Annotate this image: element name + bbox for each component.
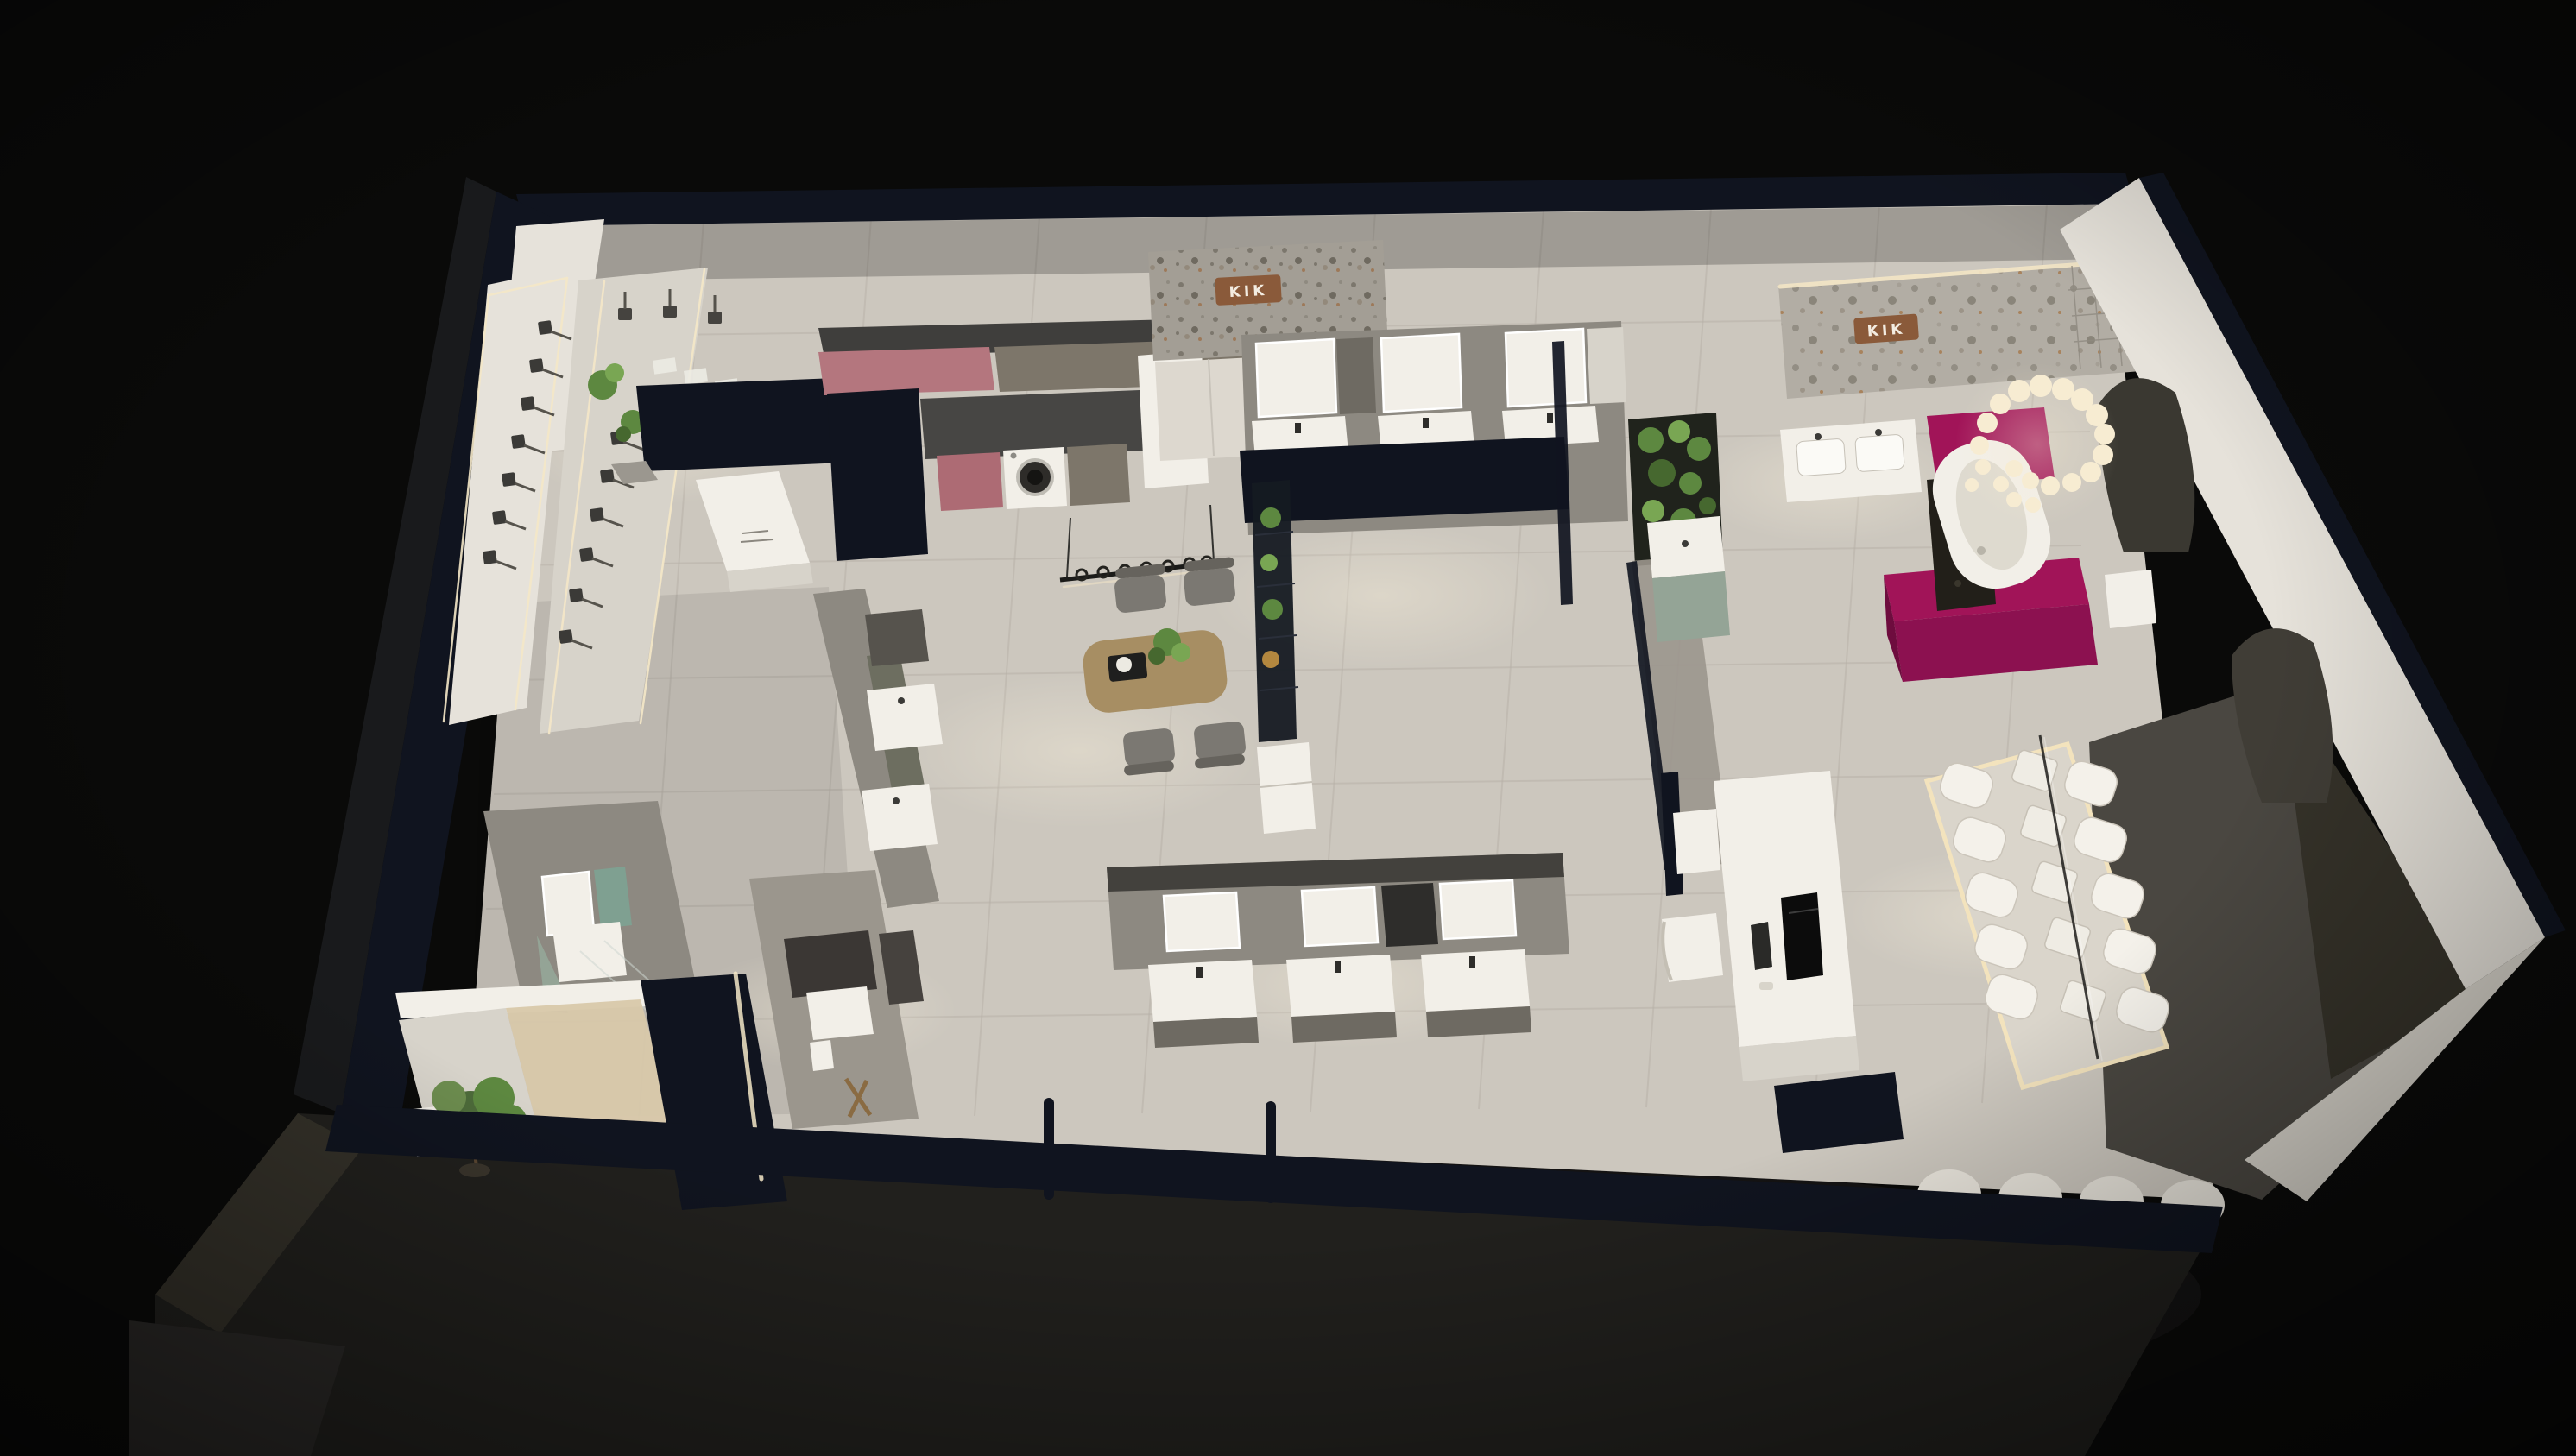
chandelier-bulb bbox=[2086, 404, 2108, 426]
vanity-row-bottom bbox=[1107, 853, 1569, 1048]
chandelier-bulb bbox=[2005, 460, 2023, 477]
ceiling-shower-head bbox=[663, 306, 677, 318]
chandelier-bulb bbox=[2022, 472, 2039, 489]
led-mirror bbox=[1381, 334, 1462, 412]
basin bbox=[1796, 438, 1847, 476]
basin bbox=[1855, 434, 1905, 472]
chandelier-bulb bbox=[2080, 462, 2101, 482]
faucet bbox=[1682, 540, 1689, 547]
basin-counter bbox=[552, 922, 627, 982]
sage-vanity bbox=[1647, 516, 1730, 642]
plant bbox=[1648, 459, 1676, 487]
front-wall-stub bbox=[1044, 1098, 1054, 1200]
plant bbox=[1260, 554, 1278, 571]
chandelier-bulb bbox=[1970, 436, 1989, 455]
mirror-side-shelf bbox=[1336, 337, 1376, 414]
brand-sign-left-text: KIK bbox=[1228, 282, 1268, 301]
shower-head bbox=[529, 358, 544, 373]
plant bbox=[1638, 427, 1664, 453]
faucet bbox=[1196, 967, 1203, 978]
front-wall-stub bbox=[1266, 1101, 1276, 1203]
plant bbox=[1171, 643, 1190, 662]
vanity-base bbox=[1291, 1012, 1397, 1043]
dining-chair bbox=[1183, 567, 1236, 607]
shower-head bbox=[569, 588, 584, 602]
plant bbox=[1262, 599, 1283, 620]
ceiling-shower-head bbox=[708, 312, 722, 324]
navy-wall-block bbox=[827, 388, 928, 561]
brand-sign-right-text: KIK bbox=[1866, 320, 1906, 340]
chandelier-bulb bbox=[2006, 492, 2022, 507]
dark-shelf-unit bbox=[1381, 883, 1438, 947]
chandelier-bulb bbox=[2094, 424, 2115, 444]
shower-head bbox=[579, 547, 594, 562]
faucet bbox=[1469, 956, 1475, 968]
vanity-base bbox=[1426, 1006, 1531, 1037]
led-mirror bbox=[1256, 339, 1336, 417]
mirror-side-shelf bbox=[1587, 327, 1626, 404]
faucet bbox=[898, 697, 905, 704]
faucet bbox=[1815, 433, 1822, 440]
shower-head bbox=[511, 434, 526, 449]
chandelier-bulb bbox=[1965, 478, 1979, 492]
chandelier-bulb bbox=[2062, 473, 2081, 492]
double-basin-vanity bbox=[1780, 419, 1922, 502]
tray-cloth bbox=[1116, 657, 1132, 672]
basin-counter bbox=[867, 684, 943, 751]
plant bbox=[1687, 437, 1711, 461]
sage-cabinet bbox=[1652, 571, 1730, 642]
faucet bbox=[893, 797, 900, 804]
chandelier-bulb bbox=[2008, 380, 2030, 402]
white-stool bbox=[1673, 809, 1720, 874]
navy-display-counter bbox=[636, 378, 844, 471]
washing-machine bbox=[1003, 447, 1067, 509]
chandelier-bulb bbox=[1977, 413, 1998, 433]
plant bbox=[1642, 500, 1664, 522]
chandelier-bulb bbox=[2030, 375, 2052, 397]
faucet bbox=[1335, 961, 1341, 973]
chandelier-bulb bbox=[1993, 476, 2009, 492]
chandelier-bulb bbox=[2041, 476, 2060, 495]
hanging-towel bbox=[810, 1040, 834, 1071]
white-vanity-cabinet bbox=[1257, 742, 1316, 834]
chandelier-bulb bbox=[2093, 444, 2113, 465]
chandelier-bulb bbox=[2025, 497, 2041, 513]
shower-head bbox=[538, 320, 552, 335]
basin-counter bbox=[862, 784, 938, 851]
remote-control bbox=[1759, 982, 1773, 990]
shower-head bbox=[600, 469, 615, 483]
showroom-render-canvas: KIK bbox=[0, 0, 2576, 1456]
shower-head bbox=[590, 507, 604, 522]
low-navy-counter bbox=[636, 378, 844, 471]
navy-floor-mat bbox=[1774, 1072, 1904, 1153]
faucet bbox=[1547, 413, 1553, 423]
dried-plant bbox=[1262, 651, 1279, 668]
shower-head bbox=[502, 472, 516, 487]
chandelier-bulb bbox=[2052, 378, 2074, 400]
plant bbox=[432, 1081, 466, 1115]
vanity-unit bbox=[1378, 334, 1474, 452]
led-mirror bbox=[1506, 329, 1586, 407]
white-chair bbox=[2105, 570, 2156, 628]
plant bbox=[616, 426, 631, 442]
ceiling-shower-head bbox=[618, 308, 632, 320]
led-mirror bbox=[1164, 892, 1240, 951]
plant bbox=[605, 363, 624, 382]
plant bbox=[1148, 647, 1165, 665]
faucet bbox=[1875, 429, 1882, 436]
plant bbox=[1668, 420, 1690, 443]
plant bbox=[1260, 507, 1281, 528]
vanity-base bbox=[1153, 1017, 1259, 1048]
shower-head bbox=[492, 510, 507, 525]
base-cabinet-pink bbox=[937, 452, 1003, 511]
chandelier-bulb bbox=[1990, 394, 2011, 414]
dining-chair bbox=[1114, 574, 1167, 614]
upper-cabinets-pink bbox=[818, 347, 994, 395]
bathtub-drain bbox=[1977, 546, 1986, 555]
plant bbox=[1679, 472, 1702, 495]
chandelier-bulb bbox=[1975, 459, 1991, 475]
mirror-dark bbox=[865, 609, 929, 666]
washer-knob bbox=[1011, 453, 1017, 459]
shower-head bbox=[521, 396, 535, 411]
shower-head bbox=[559, 629, 573, 644]
led-mirror bbox=[1440, 880, 1516, 939]
white-chair bbox=[1662, 913, 1723, 982]
led-mirror bbox=[1302, 887, 1378, 946]
shower-head bbox=[483, 550, 497, 564]
basin-counter bbox=[806, 986, 874, 1040]
tall-navy-wall bbox=[827, 388, 928, 561]
tv-screen bbox=[1781, 892, 1823, 980]
faucet bbox=[1295, 423, 1301, 433]
base-cabinet-taupe bbox=[1067, 444, 1130, 506]
basin-counter bbox=[1647, 516, 1725, 578]
washer-drum bbox=[1027, 470, 1043, 485]
tree-pot bbox=[459, 1163, 490, 1177]
render-stage: KIK bbox=[0, 0, 2576, 1456]
faucet bbox=[1423, 418, 1429, 428]
plant bbox=[1699, 497, 1716, 514]
